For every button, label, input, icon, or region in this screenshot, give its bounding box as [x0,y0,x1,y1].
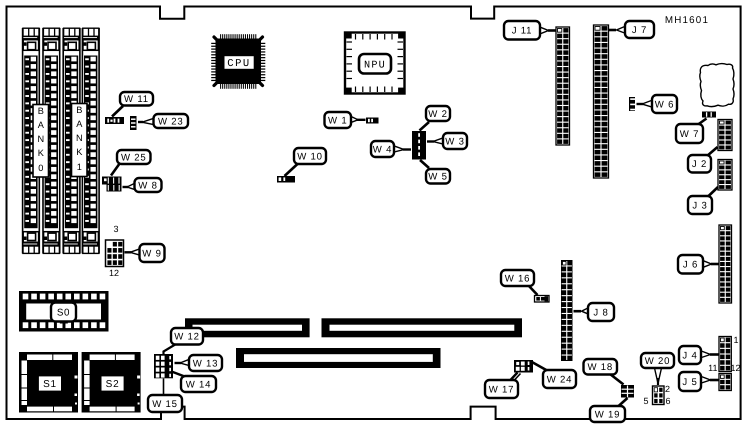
svg-text:11: 11 [708,363,717,373]
svg-text:S0: S0 [57,308,70,319]
svg-text:N: N [37,134,44,144]
svg-text:W 1: W 1 [328,115,347,126]
svg-text:A: A [38,120,45,130]
svg-text:J 5: J 5 [682,377,697,388]
svg-text:W 7: W 7 [680,129,699,140]
svg-text:W 3: W 3 [445,136,464,147]
svg-text:CPU: CPU [227,58,250,70]
svg-text:W 17: W 17 [489,384,515,395]
svg-text:W 14: W 14 [186,379,212,390]
svg-text:J 4: J 4 [682,350,697,361]
svg-text:W 20: W 20 [645,356,671,367]
svg-text:5: 5 [643,396,648,406]
svg-text:W 18: W 18 [587,362,613,373]
svg-text:W 8: W 8 [138,180,157,191]
svg-text:W 6: W 6 [655,99,674,110]
svg-text:S2: S2 [106,379,120,390]
svg-text:NPU: NPU [364,61,386,72]
svg-text:K: K [76,147,83,157]
svg-text:W 2: W 2 [428,109,447,120]
svg-text:K: K [38,148,45,158]
svg-text:W 16: W 16 [505,273,531,284]
svg-text:J 6: J 6 [683,260,698,271]
svg-text:N: N [76,133,83,143]
svg-text:B: B [76,105,82,115]
svg-text:12: 12 [731,363,741,373]
svg-text:2: 2 [665,384,670,394]
svg-text:1: 1 [734,335,739,345]
svg-text:W 19: W 19 [595,409,621,420]
svg-text:J 8: J 8 [593,307,608,318]
svg-text:MH1601: MH1601 [665,15,709,26]
svg-text:W 12: W 12 [174,332,200,343]
svg-text:0: 0 [38,163,43,173]
svg-text:J 11: J 11 [512,26,533,37]
svg-text:S1: S1 [43,379,57,390]
svg-text:A: A [76,119,83,129]
svg-text:1: 1 [77,162,82,172]
svg-text:W 23: W 23 [158,116,184,127]
svg-text:W 5: W 5 [428,172,447,183]
svg-text:B: B [38,106,44,116]
svg-text:W 4: W 4 [373,144,392,155]
svg-text:W 10: W 10 [297,151,323,162]
svg-text:W 15: W 15 [152,399,178,410]
svg-text:12: 12 [109,268,119,278]
svg-text:6: 6 [665,396,670,406]
svg-text:3: 3 [113,224,118,234]
svg-text:W 11: W 11 [124,94,149,105]
svg-text:W 13: W 13 [193,358,219,369]
svg-text:J 7: J 7 [632,25,647,36]
svg-text:J 2: J 2 [692,159,707,170]
svg-text:J 3: J 3 [692,200,707,211]
svg-text:W 9: W 9 [142,248,161,259]
svg-text:W 25: W 25 [121,152,147,163]
svg-text:W 24: W 24 [547,374,573,385]
